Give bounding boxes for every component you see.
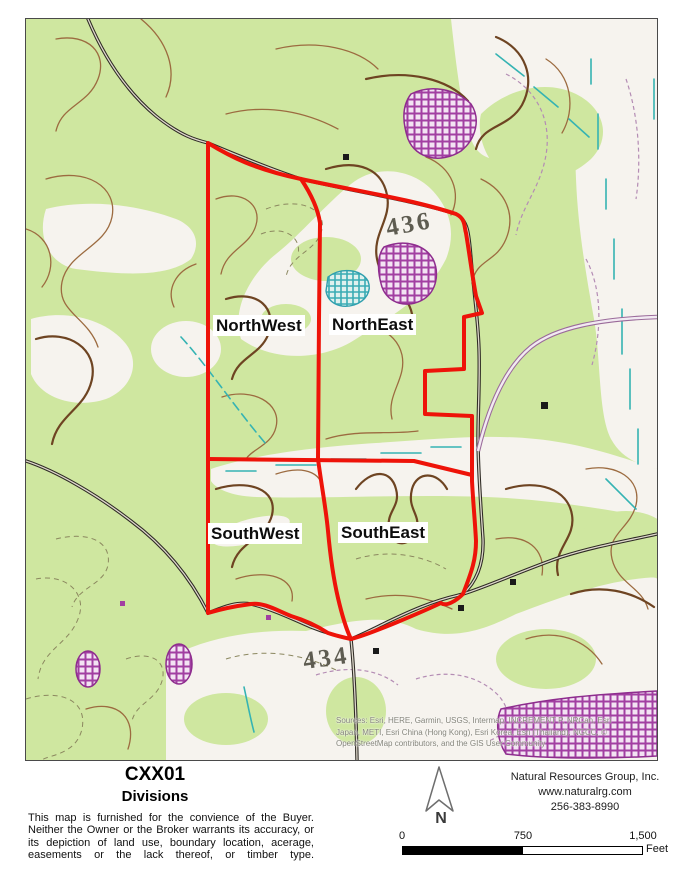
scale-label-end: 1,500 [613,830,673,842]
map-canvas: NorthWest NorthEast SouthWest SouthEast … [25,18,658,761]
company-block: Natural Resources Group, Inc. www.natura… [475,770,680,815]
quadrant-label-northwest: NorthWest [213,315,305,336]
scale-label-start: 0 [392,830,412,842]
quadrant-label-southeast: SouthEast [338,522,428,543]
credits-line-2: Japan, METI, Esri China (Hong Kong), Esr… [336,727,658,739]
map-subtitle: Divisions [55,788,255,806]
scale-bar-filled-half [403,847,523,854]
basemap-credits: Sources: Esri, HERE, Garmin, USGS, Inter… [336,715,658,750]
title-block: CXX01 Divisions [55,764,255,806]
company-name: Natural Resources Group, Inc. [475,770,680,785]
scale-bar [402,846,643,855]
scale-unit-label: Feet [646,843,668,855]
map-title: CXX01 [55,764,255,786]
quadrant-label-northeast: NorthEast [329,314,416,335]
disclaimer-text: This map is furnished for the convience … [28,812,314,862]
company-phone: 256-383-8990 [475,800,680,815]
pond [326,271,369,307]
credits-line-1: Sources: Esri, HERE, Garmin, USGS, Inter… [336,715,658,727]
north-arrow-icon [424,766,458,814]
company-website: www.naturalrg.com [475,785,680,800]
credits-line-3: OpenStreetMap contributors, and the GIS … [336,738,658,750]
scale-label-mid: 750 [503,830,543,842]
map-sheet: NorthWest NorthEast SouthWest SouthEast … [0,0,680,880]
north-arrow-label: N [424,810,458,828]
quadrant-label-southwest: SouthWest [208,523,302,544]
